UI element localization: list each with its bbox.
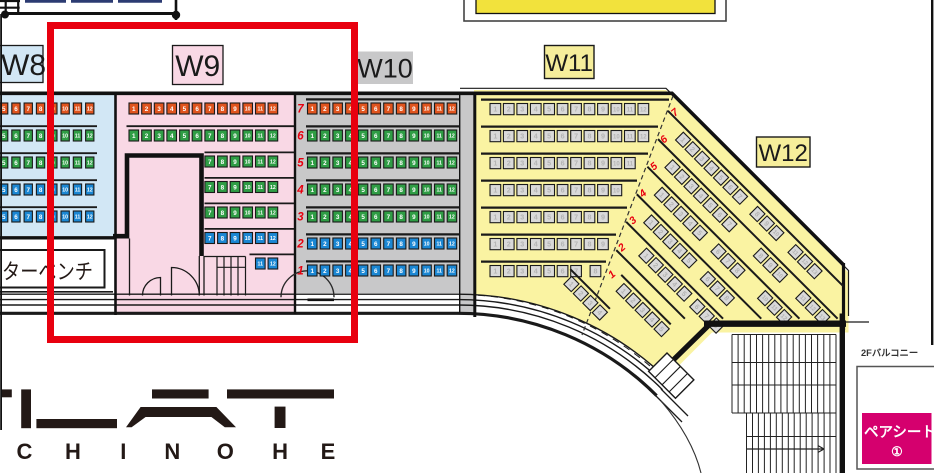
svg-text:12: 12 — [270, 106, 276, 112]
svg-text:3: 3 — [157, 133, 161, 140]
svg-text:3: 3 — [336, 268, 340, 275]
svg-text:10: 10 — [424, 241, 430, 247]
svg-text:10: 10 — [424, 106, 430, 112]
svg-text:C: C — [17, 439, 33, 464]
svg-text:7: 7 — [208, 133, 212, 140]
svg-text:8: 8 — [399, 268, 403, 275]
svg-text:12: 12 — [640, 134, 647, 140]
svg-text:2: 2 — [323, 241, 327, 248]
svg-text:12: 12 — [87, 187, 93, 193]
svg-text:6: 6 — [374, 106, 378, 113]
svg-text:10: 10 — [424, 268, 430, 274]
svg-text:5: 5 — [2, 106, 6, 113]
svg-text:9: 9 — [412, 268, 416, 275]
svg-text:5: 5 — [183, 133, 187, 140]
svg-text:8: 8 — [588, 159, 592, 168]
svg-text:7: 7 — [208, 235, 212, 242]
svg-text:W12: W12 — [759, 140, 808, 167]
svg-text:12: 12 — [449, 133, 455, 139]
svg-text:4: 4 — [534, 132, 538, 141]
svg-text:7: 7 — [574, 132, 578, 141]
svg-text:12: 12 — [270, 133, 276, 139]
svg-text:7: 7 — [387, 106, 391, 113]
svg-text:10: 10 — [245, 236, 251, 242]
svg-text:8: 8 — [588, 213, 592, 222]
svg-text:10: 10 — [424, 187, 430, 193]
svg-text:11: 11 — [436, 214, 442, 220]
svg-text:2: 2 — [507, 186, 511, 195]
svg-text:8: 8 — [221, 159, 225, 166]
svg-text:5: 5 — [2, 133, 6, 140]
svg-text:11: 11 — [75, 187, 81, 193]
svg-text:12: 12 — [270, 261, 276, 267]
svg-text:2: 2 — [145, 106, 149, 113]
svg-text:7: 7 — [26, 106, 30, 113]
svg-text:12: 12 — [270, 185, 276, 191]
svg-text:9: 9 — [233, 133, 237, 140]
svg-text:5: 5 — [361, 160, 365, 167]
svg-text:10: 10 — [424, 214, 430, 220]
svg-text:W8: W8 — [1, 49, 46, 82]
svg-text:6: 6 — [374, 160, 378, 167]
svg-text:7: 7 — [387, 214, 391, 221]
svg-text:6: 6 — [195, 106, 199, 113]
svg-text:11: 11 — [75, 106, 81, 112]
svg-text:5: 5 — [361, 187, 365, 194]
svg-text:3: 3 — [297, 212, 304, 224]
svg-text:7: 7 — [574, 240, 578, 249]
svg-text:1: 1 — [310, 241, 314, 248]
svg-text:7: 7 — [208, 210, 212, 217]
svg-text:11: 11 — [75, 214, 81, 220]
svg-text:9: 9 — [601, 105, 605, 114]
svg-text:3: 3 — [520, 159, 524, 168]
svg-text:H: H — [65, 439, 81, 464]
svg-text:11: 11 — [75, 133, 81, 139]
svg-text:6: 6 — [374, 268, 378, 275]
svg-text:9: 9 — [233, 159, 237, 166]
svg-text:9: 9 — [412, 241, 416, 248]
svg-text:4: 4 — [170, 133, 174, 140]
svg-text:11: 11 — [258, 159, 264, 165]
svg-text:3: 3 — [336, 160, 340, 167]
svg-text:3: 3 — [336, 106, 340, 113]
svg-text:10: 10 — [245, 210, 251, 216]
svg-text:1: 1 — [132, 106, 136, 113]
svg-text:5: 5 — [547, 132, 551, 141]
svg-text:1: 1 — [493, 267, 497, 276]
svg-text:11: 11 — [436, 187, 442, 193]
svg-text:3: 3 — [520, 240, 524, 249]
svg-text:3: 3 — [336, 214, 340, 221]
svg-text:7: 7 — [387, 241, 391, 248]
svg-text:1: 1 — [310, 214, 314, 221]
svg-text:8: 8 — [399, 214, 403, 221]
svg-text:10: 10 — [613, 188, 620, 194]
svg-text:5: 5 — [361, 133, 365, 140]
svg-text:9: 9 — [601, 240, 605, 249]
svg-text:6: 6 — [14, 106, 18, 113]
svg-text:4: 4 — [534, 159, 538, 168]
svg-text:6: 6 — [195, 133, 199, 140]
svg-text:5: 5 — [2, 160, 6, 167]
svg-text:7: 7 — [387, 187, 391, 194]
svg-text:7: 7 — [208, 159, 212, 166]
svg-text:5: 5 — [361, 268, 365, 275]
svg-text:8: 8 — [39, 133, 43, 140]
svg-text:10: 10 — [245, 159, 251, 165]
svg-text:12: 12 — [449, 268, 455, 274]
svg-text:12: 12 — [87, 214, 93, 220]
svg-text:1: 1 — [493, 132, 497, 141]
svg-text:7: 7 — [26, 160, 30, 167]
svg-text:1: 1 — [493, 105, 497, 114]
svg-text:4: 4 — [534, 240, 538, 249]
svg-text:3: 3 — [520, 267, 524, 276]
svg-text:11: 11 — [258, 236, 264, 242]
svg-text:6: 6 — [374, 214, 378, 221]
svg-text:9: 9 — [601, 213, 605, 222]
svg-text:3: 3 — [520, 186, 524, 195]
svg-text:6: 6 — [561, 213, 565, 222]
svg-text:11: 11 — [436, 268, 442, 274]
svg-text:2: 2 — [323, 133, 327, 140]
svg-text:11: 11 — [627, 107, 634, 113]
svg-text:11: 11 — [436, 133, 442, 139]
svg-text:12: 12 — [449, 241, 455, 247]
svg-text:3: 3 — [520, 105, 524, 114]
svg-text:7: 7 — [574, 105, 578, 114]
svg-text:11: 11 — [258, 185, 264, 191]
svg-text:7: 7 — [208, 184, 212, 191]
svg-text:6: 6 — [561, 159, 565, 168]
svg-text:7: 7 — [387, 268, 391, 275]
svg-text:W11: W11 — [545, 50, 593, 77]
svg-text:9: 9 — [601, 159, 605, 168]
svg-text:8: 8 — [221, 184, 225, 191]
svg-text:10: 10 — [62, 214, 68, 220]
svg-text:1: 1 — [310, 160, 314, 167]
svg-text:5: 5 — [547, 213, 551, 222]
svg-text:1: 1 — [310, 133, 314, 140]
svg-text:8: 8 — [221, 235, 225, 242]
svg-text:11: 11 — [436, 160, 442, 166]
svg-text:9: 9 — [233, 235, 237, 242]
svg-text:5: 5 — [2, 187, 6, 194]
svg-text:2Fバルコニー: 2Fバルコニー — [861, 348, 918, 358]
svg-text:5: 5 — [361, 106, 365, 113]
svg-text:10: 10 — [245, 106, 251, 112]
svg-text:8: 8 — [399, 133, 403, 140]
svg-text:11: 11 — [258, 210, 264, 216]
svg-text:6: 6 — [14, 214, 18, 221]
svg-text:4: 4 — [170, 106, 174, 113]
svg-text:3: 3 — [520, 132, 524, 141]
svg-text:7: 7 — [574, 186, 578, 195]
svg-text:8: 8 — [221, 210, 225, 217]
svg-text:10: 10 — [245, 133, 251, 139]
svg-text:2: 2 — [323, 214, 327, 221]
svg-text:9: 9 — [412, 160, 416, 167]
svg-text:O: O — [217, 439, 234, 464]
svg-text:6: 6 — [561, 267, 565, 276]
svg-text:8: 8 — [39, 106, 43, 113]
svg-text:4: 4 — [534, 186, 538, 195]
svg-text:12: 12 — [270, 236, 276, 242]
svg-text:1: 1 — [297, 266, 303, 278]
svg-text:2: 2 — [507, 105, 511, 114]
svg-text:5: 5 — [2, 214, 6, 221]
svg-text:10: 10 — [62, 133, 68, 139]
svg-text:6: 6 — [561, 105, 565, 114]
svg-text:1: 1 — [493, 240, 497, 249]
svg-text:2: 2 — [145, 133, 149, 140]
svg-text:1: 1 — [310, 187, 314, 194]
svg-text:10: 10 — [424, 133, 430, 139]
svg-text:11: 11 — [258, 106, 264, 112]
svg-text:5: 5 — [547, 159, 551, 168]
svg-text:1: 1 — [493, 159, 497, 168]
svg-text:9: 9 — [412, 106, 416, 113]
svg-text:H: H — [272, 439, 288, 464]
svg-text:8: 8 — [399, 187, 403, 194]
svg-text:7: 7 — [208, 106, 212, 113]
svg-text:2: 2 — [507, 159, 511, 168]
svg-text:1: 1 — [493, 213, 497, 222]
svg-text:12: 12 — [449, 106, 455, 112]
svg-text:12: 12 — [640, 107, 647, 113]
svg-text:①: ① — [891, 444, 903, 459]
svg-text:8: 8 — [588, 105, 592, 114]
svg-text:6: 6 — [374, 241, 378, 248]
svg-text:6: 6 — [561, 186, 565, 195]
svg-text:7: 7 — [26, 214, 30, 221]
svg-text:8: 8 — [588, 132, 592, 141]
svg-text:8: 8 — [39, 187, 43, 194]
svg-text:5: 5 — [183, 106, 187, 113]
svg-text:6: 6 — [297, 131, 304, 143]
svg-text:4: 4 — [534, 105, 538, 114]
svg-text:3: 3 — [336, 241, 340, 248]
svg-text:5: 5 — [547, 240, 551, 249]
svg-text:12: 12 — [449, 187, 455, 193]
svg-text:8: 8 — [399, 241, 403, 248]
svg-text:2: 2 — [507, 267, 511, 276]
svg-text:9: 9 — [412, 214, 416, 221]
svg-text:9: 9 — [601, 132, 605, 141]
svg-text:4: 4 — [534, 267, 538, 276]
svg-text:7: 7 — [574, 213, 578, 222]
svg-text:11: 11 — [436, 241, 442, 247]
svg-text:6: 6 — [374, 133, 378, 140]
svg-text:2: 2 — [507, 132, 511, 141]
svg-text:2: 2 — [507, 213, 511, 222]
svg-text:I: I — [120, 439, 126, 464]
svg-text:9: 9 — [233, 210, 237, 217]
svg-text:5: 5 — [297, 158, 304, 170]
svg-text:10: 10 — [613, 161, 620, 167]
svg-text:8: 8 — [399, 160, 403, 167]
svg-text:11: 11 — [436, 106, 442, 112]
svg-text:2: 2 — [323, 106, 327, 113]
svg-text:5: 5 — [547, 105, 551, 114]
svg-text:2: 2 — [323, 187, 327, 194]
svg-text:8: 8 — [221, 133, 225, 140]
svg-text:6: 6 — [561, 132, 565, 141]
svg-text:5: 5 — [547, 267, 551, 276]
svg-text:8: 8 — [588, 186, 592, 195]
svg-text:8: 8 — [39, 214, 43, 221]
svg-text:10: 10 — [62, 160, 68, 166]
svg-text:10: 10 — [62, 187, 68, 193]
svg-text:8: 8 — [588, 240, 592, 249]
svg-text:11: 11 — [627, 161, 634, 167]
svg-text:W10: W10 — [357, 54, 413, 84]
svg-text:12: 12 — [270, 159, 276, 165]
svg-text:6: 6 — [374, 187, 378, 194]
svg-text:8: 8 — [594, 267, 598, 276]
svg-text:6: 6 — [14, 160, 18, 167]
svg-text:N: N — [164, 439, 180, 464]
svg-text:3: 3 — [336, 187, 340, 194]
svg-text:ペアシート: ペアシート — [864, 425, 934, 441]
svg-text:E: E — [321, 439, 336, 464]
svg-text:5: 5 — [361, 241, 365, 248]
svg-text:9: 9 — [412, 187, 416, 194]
svg-text:7: 7 — [387, 160, 391, 167]
svg-text:6: 6 — [561, 240, 565, 249]
svg-text:W9: W9 — [175, 50, 220, 83]
svg-text:8: 8 — [221, 106, 225, 113]
svg-text:10: 10 — [245, 185, 251, 191]
svg-text:12: 12 — [449, 160, 455, 166]
svg-text:11: 11 — [258, 261, 264, 267]
svg-text:12: 12 — [449, 214, 455, 220]
svg-text:1: 1 — [310, 268, 314, 275]
svg-text:7: 7 — [297, 104, 304, 116]
svg-text:9: 9 — [233, 106, 237, 113]
svg-text:1: 1 — [493, 186, 497, 195]
svg-text:6: 6 — [14, 187, 18, 194]
svg-text:11: 11 — [258, 133, 264, 139]
svg-text:3: 3 — [520, 213, 524, 222]
svg-text:11: 11 — [627, 134, 634, 140]
svg-text:10: 10 — [613, 134, 620, 140]
svg-text:12: 12 — [87, 133, 93, 139]
svg-text:2: 2 — [507, 240, 511, 249]
svg-text:3: 3 — [157, 106, 161, 113]
svg-text:8: 8 — [399, 106, 403, 113]
svg-text:2: 2 — [323, 160, 327, 167]
svg-text:9: 9 — [233, 184, 237, 191]
svg-text:12: 12 — [87, 106, 93, 112]
svg-text:9: 9 — [601, 186, 605, 195]
svg-text:7: 7 — [26, 187, 30, 194]
svg-text:10: 10 — [424, 160, 430, 166]
svg-text:7: 7 — [574, 159, 578, 168]
svg-text:5: 5 — [361, 214, 365, 221]
svg-text:8: 8 — [39, 160, 43, 167]
svg-text:12: 12 — [270, 210, 276, 216]
svg-text:5: 5 — [547, 186, 551, 195]
svg-text:10: 10 — [613, 107, 620, 113]
svg-text:9: 9 — [412, 133, 416, 140]
svg-text:7: 7 — [26, 133, 30, 140]
svg-text:4: 4 — [534, 213, 538, 222]
svg-text:10: 10 — [62, 106, 68, 112]
svg-text:4: 4 — [296, 185, 304, 197]
svg-text:7: 7 — [387, 133, 391, 140]
svg-text:2: 2 — [323, 268, 327, 275]
svg-text:1: 1 — [310, 106, 314, 113]
svg-text:11: 11 — [75, 160, 81, 166]
svg-text:3: 3 — [336, 133, 340, 140]
svg-text:1: 1 — [132, 133, 136, 140]
svg-text:12: 12 — [87, 160, 93, 166]
svg-text:6: 6 — [14, 133, 18, 140]
svg-text:2: 2 — [296, 239, 304, 251]
